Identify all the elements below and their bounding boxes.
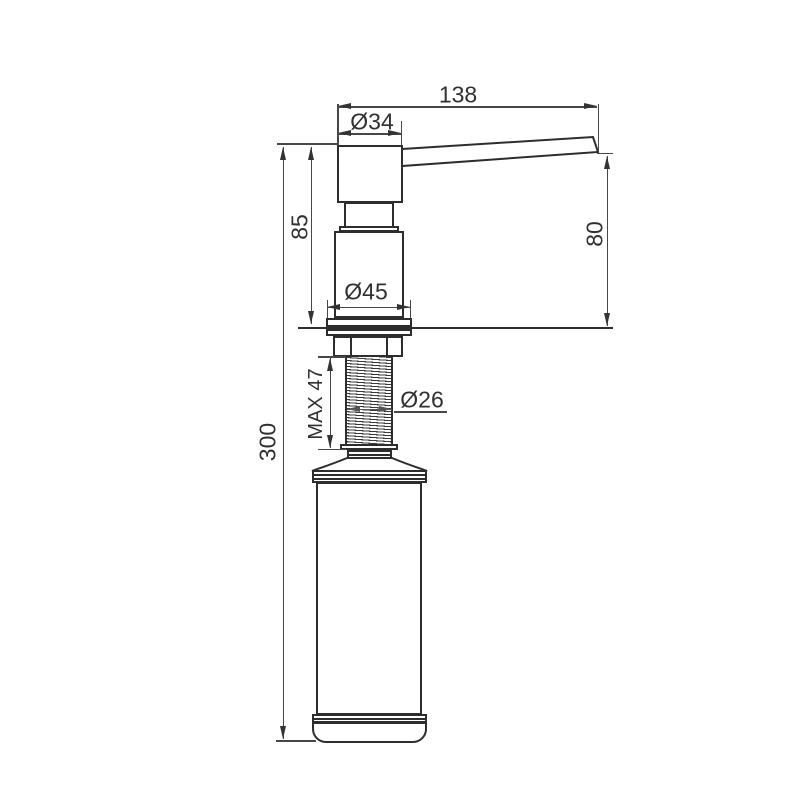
tick-300-bottom <box>276 740 316 742</box>
bottle-bottom-cup <box>312 722 427 743</box>
dim-label-overall-height: 300 <box>257 423 280 461</box>
counter-line <box>298 327 613 329</box>
ext-line-138-left <box>337 104 339 145</box>
arrowhead-max47-down-icon <box>327 435 333 448</box>
arrowhead-80-up-icon <box>604 156 610 169</box>
ext-line-138-right <box>598 104 600 153</box>
nut-facet-right <box>386 336 388 357</box>
spout <box>395 128 605 173</box>
tick-max47-bottom <box>318 449 346 451</box>
pump-head <box>337 145 403 203</box>
soap-dispenser-technical-drawing: 138 Ø34 85 80 Ø45 300 MAX 47 Ø26 <box>0 0 800 800</box>
threaded-shank <box>345 357 393 448</box>
bottle-rim-line-2 <box>312 478 427 480</box>
dim-label-spout-reach: 138 <box>439 84 477 107</box>
dim-line-300 <box>283 147 285 739</box>
arrowhead-300-down-icon <box>280 726 286 739</box>
arrowhead-85-down-icon <box>308 311 314 324</box>
bottle-bottom-band-line <box>312 718 427 720</box>
arrowhead-o34-left-icon <box>338 130 351 136</box>
arrowhead-138-right-icon <box>584 103 597 109</box>
arrowhead-138-left-icon <box>338 103 351 109</box>
dim-label-outlet-height: 80 <box>584 221 607 247</box>
flange-line-lower <box>326 329 412 331</box>
arrowhead-o45-left-icon <box>327 304 340 310</box>
upper-body <box>334 231 404 318</box>
arrowhead-300-up-icon <box>280 147 286 160</box>
dim-label-thread-diameter: Ø26 <box>400 389 443 412</box>
arrowhead-o26-left-icon <box>347 406 360 412</box>
mounting-nut <box>333 336 403 357</box>
tick-80-top <box>597 153 613 155</box>
arrowhead-o45-right-icon <box>397 304 410 310</box>
dim-label-max-counter-thickness: MAX 47 <box>306 368 326 439</box>
bottle-body <box>316 482 422 715</box>
dim-label-flange-diameter: Ø45 <box>344 281 387 304</box>
arrowhead-max47-up-icon <box>327 358 333 371</box>
dim-label-upper-height: 85 <box>289 214 312 240</box>
nut-facet-left <box>350 336 352 357</box>
ext-line-top-left <box>277 143 338 145</box>
dim-label-head-diameter: Ø34 <box>350 111 393 134</box>
pump-neck <box>344 202 394 228</box>
arrowhead-80-down-icon <box>604 313 610 326</box>
arrowhead-85-up-icon <box>308 147 314 160</box>
arrowhead-o26-right-icon <box>379 406 392 412</box>
bottle-rim-line-1 <box>312 474 427 476</box>
